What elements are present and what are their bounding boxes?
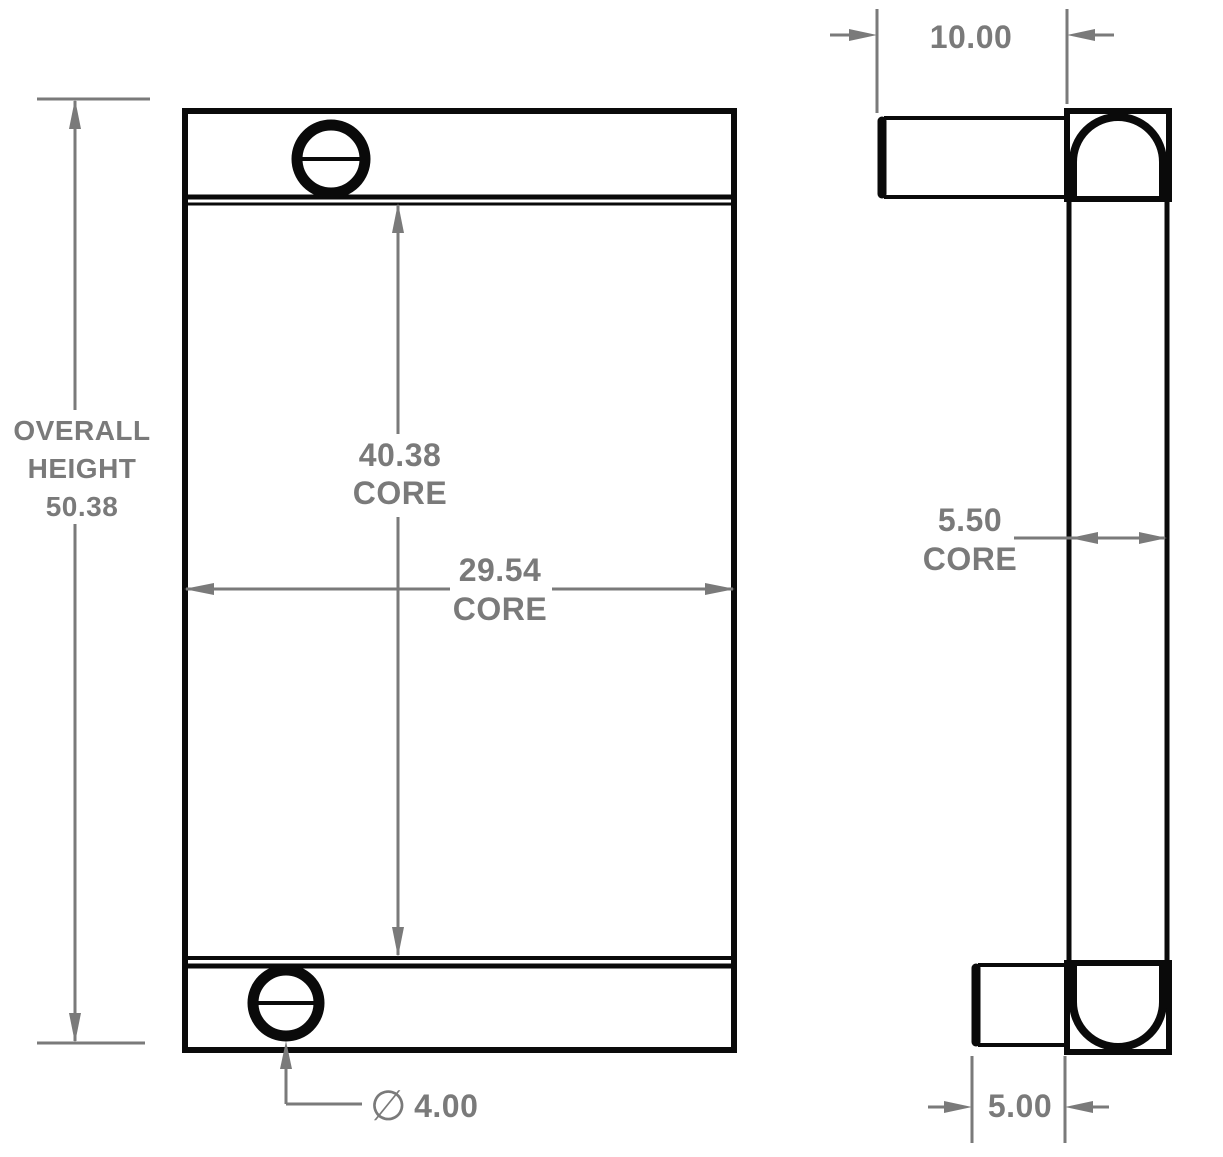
side-view — [882, 111, 1169, 1052]
bottom-inlet-depth-value: 5.00 — [950, 1089, 1090, 1123]
core-width-value: 29.54 — [430, 551, 570, 590]
overall-height-dimension — [37, 99, 150, 1043]
core-height-value: 40.38 — [330, 436, 470, 474]
core-height-arrow-up — [392, 203, 404, 233]
core-depth-arrow-left — [1070, 532, 1098, 544]
bottom-inlet-depth-label: 5.00 — [950, 1089, 1090, 1123]
core-depth-value: 5.50 — [900, 501, 1040, 540]
core-width-arrow-left — [184, 583, 214, 595]
overall-height-arrow-up — [69, 99, 81, 129]
core-width-unit: CORE — [430, 590, 570, 629]
core-depth-label: 5.50 CORE — [900, 501, 1040, 579]
diameter-symbol: ∅ — [370, 1082, 407, 1130]
overall-depth-value: 10.00 — [901, 20, 1041, 54]
side-top-tank-outline — [1067, 111, 1169, 199]
overall-height-label: OVERALL HEIGHT 50.38 — [12, 412, 152, 526]
core-height-dimension — [392, 203, 404, 957]
core-depth-arrow-right — [1139, 532, 1167, 544]
overall-depth-arrow-left — [1067, 29, 1095, 41]
side-top-port-dome — [1073, 117, 1163, 199]
port-diameter-value: 4.00 — [414, 1087, 478, 1126]
core-depth-unit: CORE — [900, 540, 1040, 579]
core-height-label: 40.38 CORE — [330, 436, 470, 512]
core-height-arrow-down — [392, 927, 404, 957]
side-bottom-tank-outline — [1067, 963, 1169, 1052]
overall-height-arrow-down — [69, 1013, 81, 1043]
overall-height-label-line2: HEIGHT — [12, 450, 152, 488]
overall-height-label-line1: OVERALL — [12, 412, 152, 450]
overall-depth-arrow-right — [849, 29, 877, 41]
port-diameter-label: ∅ 4.00 — [370, 1082, 478, 1130]
overall-depth-label: 10.00 — [901, 20, 1041, 54]
core-width-arrow-right — [705, 583, 735, 595]
side-bottom-port-dome — [1073, 963, 1163, 1047]
core-width-label: 29.54 CORE — [430, 551, 570, 629]
overall-height-label-value: 50.38 — [12, 488, 152, 526]
technical-drawing: OVERALL HEIGHT 50.38 40.38 CORE 29.54 CO… — [0, 0, 1223, 1157]
core-height-unit: CORE — [330, 474, 470, 512]
